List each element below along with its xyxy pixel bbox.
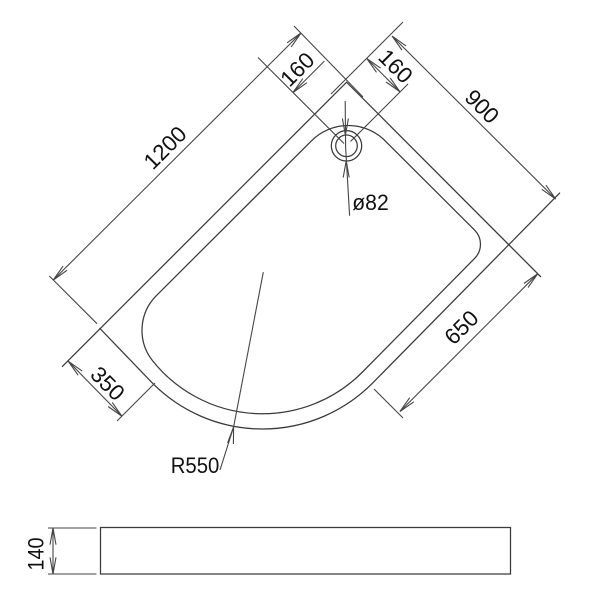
svg-text:900: 900 [460,85,504,129]
svg-text:160: 160 [275,47,319,91]
svg-text:350: 350 [85,362,129,406]
svg-text:650: 650 [439,305,483,349]
svg-text:ø82: ø82 [352,190,389,215]
svg-text:1200: 1200 [139,121,192,174]
svg-text:140: 140 [24,538,49,571]
svg-text:160: 160 [373,44,417,88]
svg-text:R550: R550 [171,453,220,478]
